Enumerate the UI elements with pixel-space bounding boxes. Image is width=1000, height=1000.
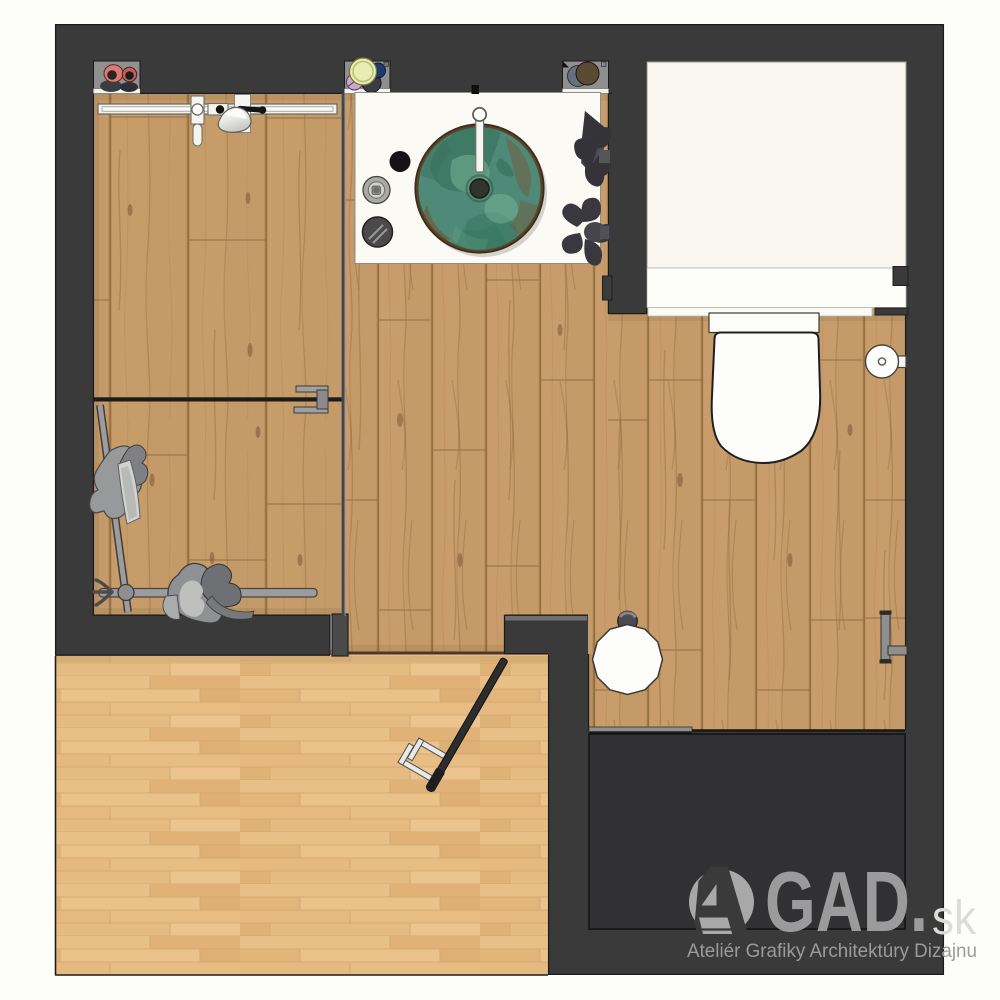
- svg-text:GAD.: GAD.: [765, 855, 928, 950]
- svg-text:Ateliér Grafiky Architektúry D: Ateliér Grafiky Architektúry Dizajnu: [687, 940, 977, 962]
- svg-text:sk: sk: [932, 892, 977, 945]
